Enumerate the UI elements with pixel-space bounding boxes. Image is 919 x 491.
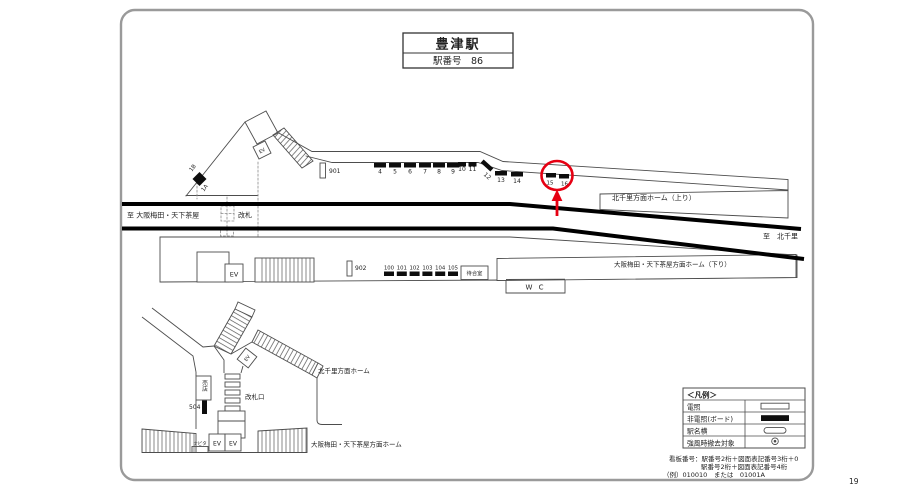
ticket-gates	[225, 374, 240, 411]
billboard-102	[410, 272, 420, 277]
billboard-13-label: 13	[497, 177, 505, 184]
to-kitasenri-label: 至 北千里	[763, 232, 798, 241]
storm-removal-icon-dot	[774, 440, 777, 443]
stairs-street-north-2	[252, 330, 318, 375]
billboard-8-label: 8	[437, 169, 441, 176]
sign-902-label: 902	[355, 265, 367, 272]
billboard-504-label: 504	[189, 404, 201, 411]
title-box: 豊津駅 駅番号 86	[403, 33, 513, 68]
billboard-103	[422, 272, 432, 277]
billboard-101	[397, 272, 407, 277]
billboard-7-label: 7	[423, 169, 427, 176]
station-diagram-svg: 豊津駅 駅番号 86 EV 1B 1	[0, 0, 919, 491]
station-name-side-icon	[764, 428, 786, 434]
billboard-6	[404, 163, 416, 168]
legend-row-2-label: 駅名横	[687, 426, 708, 435]
billboard-16	[559, 174, 569, 179]
billboard-6-label: 6	[408, 169, 412, 176]
waiting-room-label: 待合室	[467, 269, 483, 277]
elevator-street-left-label: EV	[213, 441, 222, 448]
billboards-10-11: 10 11	[458, 162, 477, 173]
corridor-right-wall	[317, 378, 342, 425]
legend-title: ＜凡例＞	[687, 390, 717, 400]
billboard-13	[495, 171, 507, 176]
red-arrow-head	[552, 190, 563, 202]
billboard-101-label: 101	[397, 266, 407, 272]
legend-row-3-label: 強風時撤去対象	[687, 438, 735, 447]
billboard-12: 12	[481, 160, 494, 182]
billboard-5-label: 5	[393, 169, 397, 176]
billboard-9-label: 9	[451, 169, 455, 176]
billboard-5	[389, 163, 401, 168]
billboard-102-label: 102	[410, 266, 420, 272]
street-edge-left	[142, 317, 196, 372]
shop-label: 売店	[201, 379, 208, 393]
elevator-box-street: EV	[237, 348, 257, 368]
platform-room	[197, 252, 229, 282]
concourse-structure: EV	[186, 111, 313, 196]
billboard-10-label: 10	[458, 166, 466, 173]
billboard-14-label: 14	[513, 178, 521, 185]
street-platform-north-label: 北千里方面ホーム	[318, 366, 370, 375]
sign-901: 901	[320, 163, 341, 178]
elevator-street-right-label: EV	[229, 441, 238, 448]
note-line-2: 駅番号2桁＋図面表記番号4桁	[701, 462, 788, 471]
billboard-100-label: 100	[384, 266, 395, 272]
billboard-11-label: 11	[469, 166, 477, 173]
billboard-4	[374, 163, 386, 168]
platform-up-label: 北千里方面ホーム（上り）	[612, 193, 696, 202]
corridor-gate-right	[241, 366, 243, 373]
wc-label: W C	[525, 284, 545, 292]
billboard-1a-label: 1A	[201, 183, 210, 193]
concourse-building	[245, 111, 278, 144]
billboard-14	[511, 172, 523, 177]
gate-entrance-label: 改札口	[245, 392, 265, 401]
billboard-105-label: 105	[448, 266, 458, 272]
note-line-1: 看板番号：駅番号2桁＋図面表記番号3桁＋0	[669, 454, 798, 463]
billboard-12-label: 12	[482, 171, 492, 181]
station-title: 豊津駅	[435, 37, 480, 53]
elevator-label-lower: EV	[230, 271, 239, 279]
platform-level-map: EV 1B 1A 北千里方面ホーム（上り）	[186, 111, 788, 258]
billboard-8	[433, 163, 445, 168]
street-edge-right	[152, 308, 214, 347]
legend-row-0-label: 電照	[687, 403, 701, 411]
street-platform-south-label: 大阪梅田・天下茶屋方面ホーム	[311, 440, 402, 449]
billboard-7	[419, 163, 431, 168]
note-line-3: （例）010010 または 01001A	[663, 470, 765, 479]
billboards-4-9: 4 5 6 7 8 9	[374, 163, 459, 176]
billboard-104	[435, 272, 445, 277]
legend-box: ＜凡例＞ 電照 非電照(ボード) 駅名横 強風時撤去対象	[683, 388, 805, 448]
billboard-104-label: 104	[435, 266, 446, 272]
legend-row-1-label: 非電照(ボード)	[687, 414, 733, 423]
station-diagram-page: 豊津駅 駅番号 86 EV 1B 1	[0, 0, 919, 491]
stairs-street-south	[258, 428, 307, 453]
page-number: 19	[849, 477, 859, 486]
numbering-notes: 看板番号：駅番号2桁＋図面表記番号3桁＋0 駅番号2桁＋図面表記番号4桁 （例）…	[663, 454, 798, 479]
billboards-15-16: 15 16	[546, 173, 569, 188]
non-illuminated-board-icon	[761, 415, 789, 421]
platform-down-label: 大阪梅田・天下茶屋方面ホーム（下り）	[614, 260, 731, 269]
kaisatsu-label: 改札	[238, 211, 252, 220]
billboards-13-14: 13 14	[495, 171, 523, 185]
billboard-504	[202, 401, 207, 415]
stairs-street-north-1	[214, 309, 252, 354]
sign-901-label: 901	[329, 168, 341, 175]
illuminated-panel-icon	[761, 403, 789, 409]
billboard-15	[546, 173, 556, 178]
billboard-4-label: 4	[378, 169, 382, 176]
stairs-street-west	[142, 429, 196, 453]
billboard-105	[448, 272, 458, 277]
street-level-map: EV 北千里方面ホーム 売店 504 改札口 ナビタ	[142, 302, 402, 453]
billboard-103-label: 103	[422, 266, 432, 272]
station-number: 駅番号 86	[433, 55, 483, 67]
billboard-1b-label: 1B	[189, 163, 198, 173]
billboard-100	[384, 272, 394, 277]
to-umeda-label: 至 大阪梅田・天下茶屋	[127, 211, 199, 220]
stairs-concourse	[273, 128, 313, 168]
